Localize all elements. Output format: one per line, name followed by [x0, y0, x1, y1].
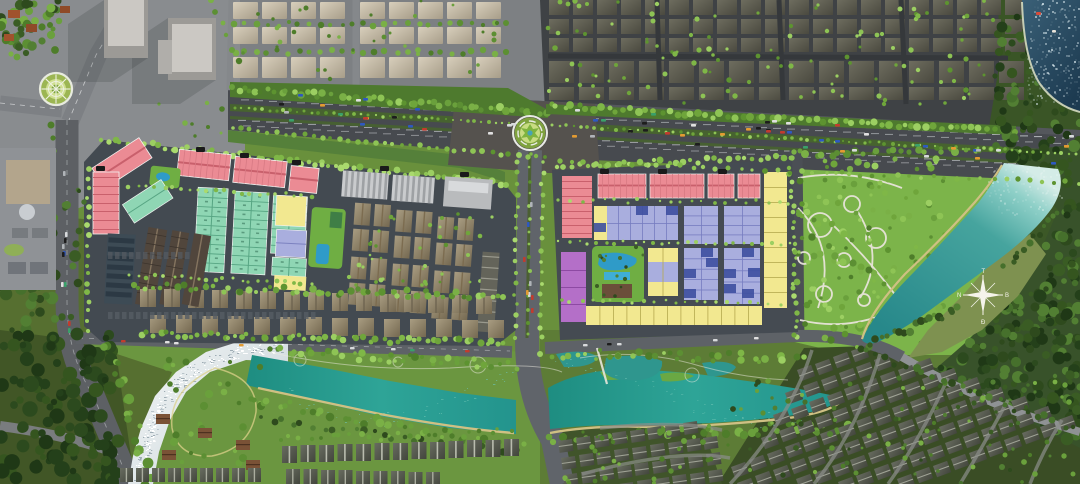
- svg-text:Đ: Đ: [981, 320, 986, 326]
- svg-text:T: T: [982, 269, 986, 275]
- svg-text:N: N: [957, 293, 961, 299]
- svg-text:B: B: [1005, 293, 1009, 299]
